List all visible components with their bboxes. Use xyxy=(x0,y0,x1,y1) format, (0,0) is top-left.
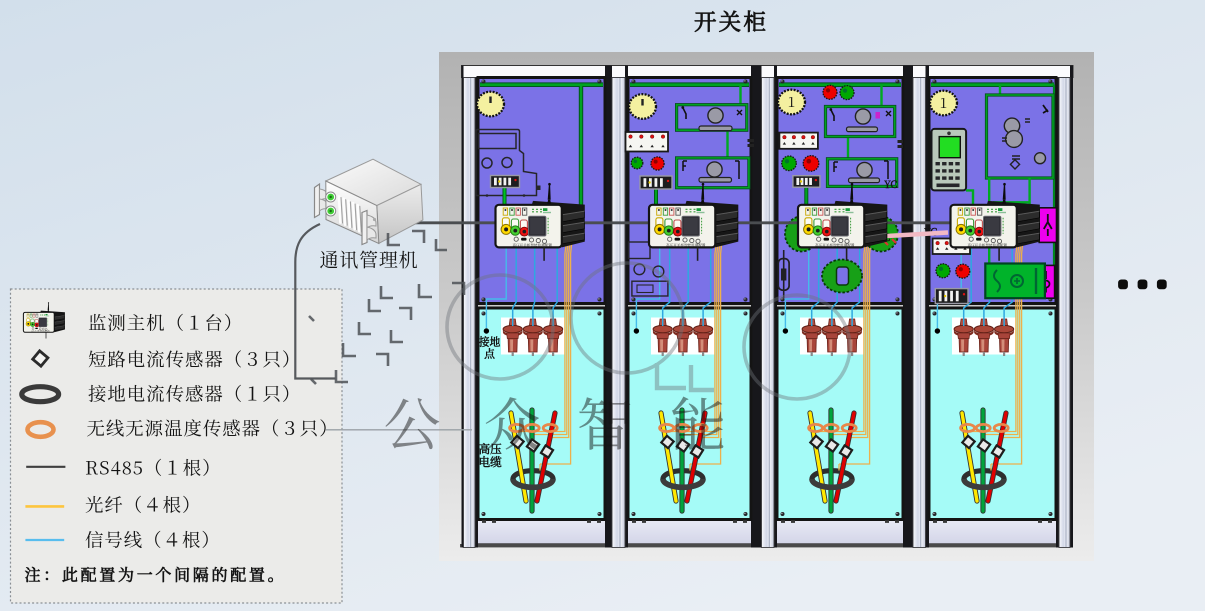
svg-text:开关柜: 开关柜 xyxy=(694,5,768,37)
svg-text:公: 公 xyxy=(384,380,441,462)
svg-text:1: 1 xyxy=(788,92,796,112)
svg-text:众: 众 xyxy=(484,380,541,462)
svg-text:通讯管理机: 通讯管理机 xyxy=(319,246,418,273)
svg-text:光纤（４根）: 光纤（４根） xyxy=(85,492,201,518)
svg-text:短路电流传感器（３只）: 短路电流传感器（３只） xyxy=(88,346,301,372)
svg-text:监测主机（１台）: 监测主机（１台） xyxy=(88,310,243,336)
svg-text:点: 点 xyxy=(484,347,495,362)
svg-text:1: 1 xyxy=(940,93,948,113)
svg-text:YC: YC xyxy=(884,176,897,191)
svg-text:接地电流传感器（１只）: 接地电流传感器（１只） xyxy=(88,381,301,407)
svg-text:YC: YC xyxy=(924,224,937,239)
svg-text:注：此配置为一个间隔的配置。: 注：此配置为一个间隔的配置。 xyxy=(25,563,287,586)
svg-text:信号线（４根）: 信号线（４根） xyxy=(85,527,221,553)
svg-text:智: 智 xyxy=(577,380,634,462)
svg-text:能: 能 xyxy=(670,380,727,462)
svg-text:无线无源温度传感器（３只）: 无线无源温度传感器（３只） xyxy=(87,415,339,441)
svg-text:RS485（１根）: RS485（１根） xyxy=(85,455,221,481)
